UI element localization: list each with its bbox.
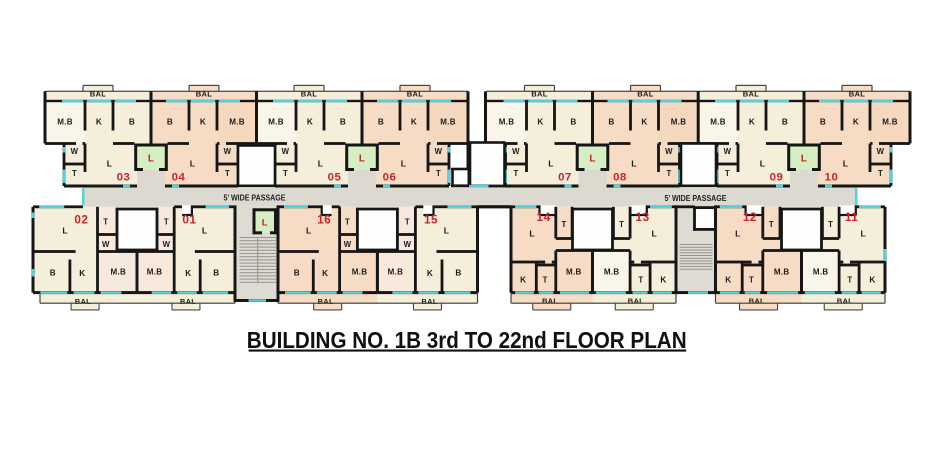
svg-text:L: L (735, 228, 741, 238)
svg-text:K: K (749, 117, 755, 126)
svg-text:L: L (107, 158, 113, 168)
svg-text:06: 06 (383, 171, 397, 183)
svg-text:K: K (725, 275, 731, 284)
svg-text:T: T (561, 220, 566, 229)
svg-text:L: L (444, 226, 450, 236)
svg-text:BAL: BAL (542, 297, 558, 306)
svg-text:M.B: M.B (388, 268, 404, 277)
svg-text:K: K (96, 117, 102, 126)
svg-text:W: W (102, 240, 110, 249)
svg-text:L: L (861, 228, 867, 238)
svg-text:K: K (520, 275, 526, 284)
svg-text:L: L (843, 158, 849, 168)
svg-text:L: L (529, 228, 535, 238)
svg-text:M.B: M.B (57, 117, 73, 126)
svg-text:16: 16 (317, 212, 331, 226)
svg-text:T: T (225, 169, 230, 178)
svg-text:M.B: M.B (440, 117, 456, 126)
svg-text:T: T (405, 218, 410, 227)
svg-text:08: 08 (613, 171, 627, 183)
svg-text:BAL: BAL (628, 297, 644, 306)
svg-text:M.B: M.B (813, 268, 829, 277)
svg-text:T: T (103, 218, 108, 227)
svg-text:02: 02 (74, 212, 88, 226)
svg-text:B: B (378, 117, 384, 126)
svg-text:07: 07 (558, 171, 572, 183)
svg-text:K: K (537, 117, 543, 126)
svg-text:01: 01 (182, 212, 196, 226)
svg-text:K: K (869, 275, 875, 284)
svg-text:K: K (853, 117, 859, 126)
svg-text:T: T (283, 169, 288, 178)
svg-text:BAL: BAL (531, 89, 548, 98)
svg-text:M.B: M.B (147, 268, 163, 277)
svg-text:M.B: M.B (882, 117, 898, 126)
svg-text:T: T (847, 275, 852, 284)
svg-text:K: K (200, 117, 206, 126)
svg-text:K: K (322, 269, 328, 278)
svg-text:B: B (167, 117, 173, 126)
svg-text:T: T (666, 169, 671, 178)
svg-text:K: K (641, 117, 647, 126)
svg-text:BAL: BAL (849, 89, 866, 98)
svg-text:W: W (404, 240, 412, 249)
svg-text:M.B: M.B (352, 268, 368, 277)
svg-text:12: 12 (743, 210, 757, 224)
svg-text:L: L (318, 158, 324, 168)
svg-text:10: 10 (825, 171, 839, 183)
svg-text:B: B (820, 117, 826, 126)
svg-text:L: L (548, 158, 554, 168)
svg-text:BAL: BAL (301, 89, 318, 98)
svg-text:K: K (411, 117, 417, 126)
svg-text:T: T (749, 275, 754, 284)
svg-text:L: L (801, 153, 807, 164)
svg-text:T: T (828, 220, 833, 229)
svg-text:T: T (436, 169, 441, 178)
svg-text:M.B: M.B (604, 268, 620, 277)
svg-text:L: L (652, 228, 658, 238)
svg-text:B: B (213, 268, 219, 277)
svg-text:L: L (306, 226, 312, 236)
svg-text:W: W (512, 147, 520, 156)
svg-text:L: L (359, 153, 365, 164)
svg-text:5’ WIDE PASSAGE: 5’ WIDE PASSAGE (665, 193, 727, 203)
svg-text:L: L (148, 153, 154, 164)
svg-text:K: K (185, 269, 191, 278)
svg-text:L: L (760, 158, 766, 168)
svg-text:W: W (724, 147, 732, 156)
svg-text:T: T (164, 218, 169, 227)
svg-text:L: L (202, 226, 208, 236)
svg-text:04: 04 (172, 171, 186, 183)
svg-text:BAL: BAL (421, 297, 437, 306)
svg-text:K: K (79, 269, 85, 278)
svg-text:W: W (435, 147, 443, 156)
svg-text:M.B: M.B (111, 268, 127, 277)
svg-text:09: 09 (770, 171, 784, 183)
svg-text:M.B: M.B (671, 117, 687, 126)
svg-text:BAL: BAL (837, 297, 853, 306)
svg-text:M.B: M.B (268, 117, 284, 126)
svg-text:L: L (190, 158, 196, 168)
svg-text:5’ WIDE PASSAGE: 5’ WIDE PASSAGE (224, 192, 286, 202)
svg-text:14: 14 (537, 210, 551, 224)
svg-text:T: T (543, 275, 548, 284)
svg-text:B: B (50, 268, 56, 277)
svg-text:L: L (589, 153, 595, 164)
svg-text:05: 05 (328, 171, 342, 183)
svg-text:L: L (631, 158, 637, 168)
svg-text:15: 15 (424, 212, 438, 226)
svg-text:B: B (294, 268, 300, 277)
svg-text:T: T (513, 169, 518, 178)
svg-text:M.B: M.B (229, 117, 245, 126)
svg-text:W: W (224, 147, 232, 156)
svg-text:T: T (878, 169, 883, 178)
svg-text:W: W (163, 240, 171, 249)
svg-text:K: K (427, 269, 433, 278)
svg-text:M.B: M.B (774, 268, 790, 277)
svg-text:B: B (129, 117, 135, 126)
svg-text:03: 03 (117, 171, 131, 183)
svg-text:13: 13 (636, 210, 650, 224)
svg-text:T: T (619, 220, 624, 229)
svg-text:L: L (401, 158, 407, 168)
svg-text:T: T (725, 169, 730, 178)
svg-text:M.B: M.B (566, 268, 582, 277)
svg-text:BAL: BAL (180, 297, 196, 306)
svg-text:W: W (282, 147, 290, 156)
svg-text:B: B (570, 117, 576, 126)
svg-text:W: W (877, 147, 885, 156)
svg-text:BAL: BAL (749, 297, 765, 306)
svg-text:T: T (638, 275, 643, 284)
svg-text:BAL: BAL (75, 297, 91, 306)
svg-text:T: T (72, 169, 77, 178)
svg-text:M.B: M.B (710, 117, 726, 126)
svg-text:T: T (769, 220, 774, 229)
svg-text:W: W (344, 240, 352, 249)
svg-text:K: K (307, 117, 313, 126)
svg-text:BAL: BAL (196, 89, 213, 98)
svg-text:M.B: M.B (499, 117, 515, 126)
svg-text:B: B (455, 268, 461, 277)
svg-text:B: B (608, 117, 614, 126)
svg-text:BAL: BAL (407, 89, 424, 98)
svg-text:BAL: BAL (743, 89, 760, 98)
svg-text:BAL: BAL (318, 297, 334, 306)
svg-text:B: B (340, 117, 346, 126)
svg-text:W: W (71, 147, 79, 156)
svg-text:K: K (660, 275, 666, 284)
svg-text:BAL: BAL (637, 89, 654, 98)
svg-text:BUILDING NO. 1B 3rd TO 22nd FL: BUILDING NO. 1B 3rd TO 22nd FLOOR PLAN (247, 327, 687, 353)
svg-text:L: L (262, 218, 268, 229)
svg-text:L: L (62, 226, 68, 236)
svg-text:BAL: BAL (90, 89, 107, 98)
svg-text:W: W (665, 147, 673, 156)
svg-text:11: 11 (845, 210, 858, 224)
svg-text:B: B (782, 117, 788, 126)
svg-text:T: T (345, 218, 350, 227)
